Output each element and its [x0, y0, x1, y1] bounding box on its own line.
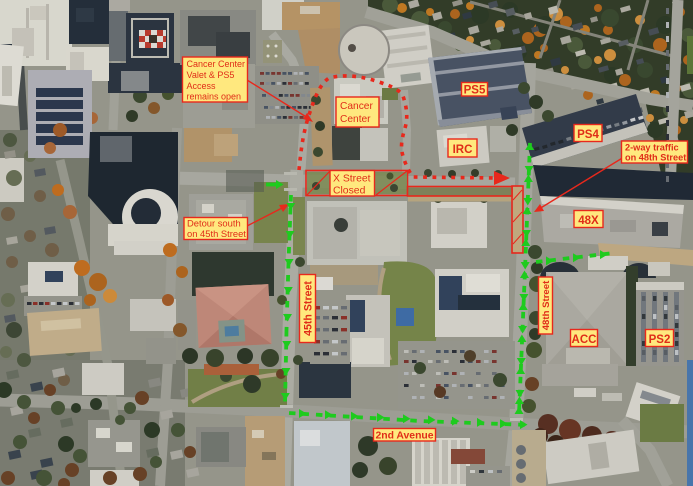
svg-text:Cancer: Cancer [340, 101, 373, 112]
svg-text:PS5: PS5 [464, 85, 486, 97]
svg-text:Detour south: Detour south [187, 218, 241, 229]
svg-text:48th Street: 48th Street [541, 280, 552, 330]
svg-text:on 48th Street: on 48th Street [625, 153, 686, 163]
svg-text:45th Street: 45th Street [303, 281, 315, 336]
svg-text:2-way traffic: 2-way traffic [625, 143, 679, 153]
svg-text:PS4: PS4 [577, 129, 599, 141]
svg-text:Valet & PS5: Valet & PS5 [187, 70, 235, 80]
svg-text:2nd Avenue: 2nd Avenue [375, 431, 433, 442]
svg-text:48X: 48X [578, 215, 599, 227]
svg-text:Access: Access [187, 81, 217, 91]
svg-text:on 45th Street: on 45th Street [187, 228, 246, 239]
svg-text:Cancer Center: Cancer Center [187, 59, 246, 69]
svg-text:remains open: remains open [187, 92, 242, 102]
svg-text:IRC: IRC [453, 144, 473, 156]
svg-text:Closed: Closed [333, 186, 366, 197]
svg-text:PS2: PS2 [649, 334, 671, 346]
svg-text:ACC: ACC [572, 334, 597, 346]
svg-text:Center: Center [340, 114, 371, 125]
svg-text:X Street: X Street [333, 174, 371, 185]
